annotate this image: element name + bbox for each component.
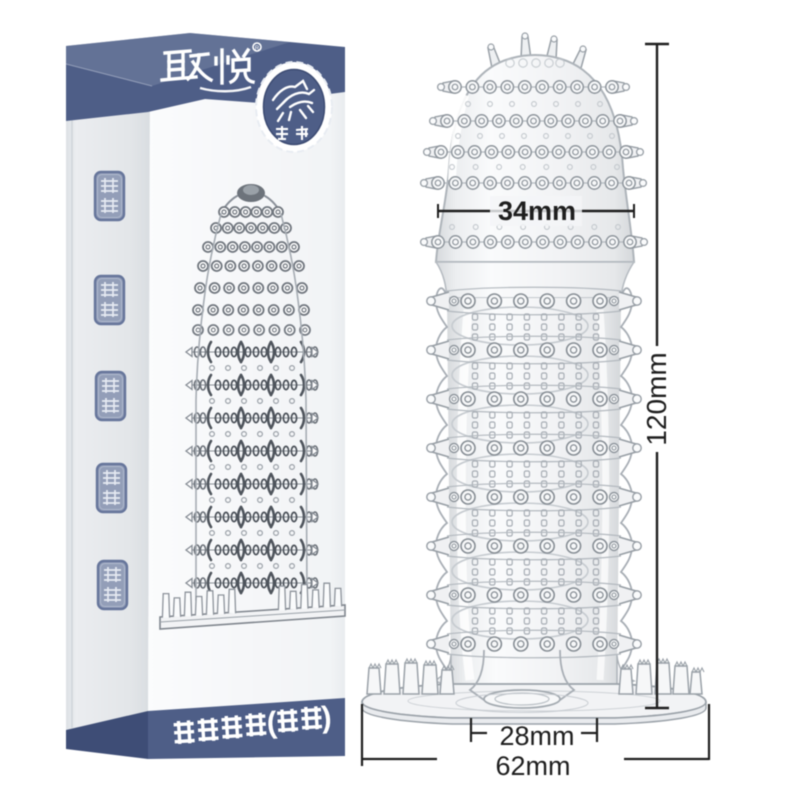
svg-text:34mm: 34mm [498,196,576,226]
svg-text:R: R [255,46,260,52]
svg-text:120mm: 120mm [641,352,672,445]
svg-text:): ) [320,701,332,735]
svg-text:62mm: 62mm [495,751,570,781]
svg-text:28mm: 28mm [499,721,574,751]
svg-text:(: ( [266,706,278,740]
